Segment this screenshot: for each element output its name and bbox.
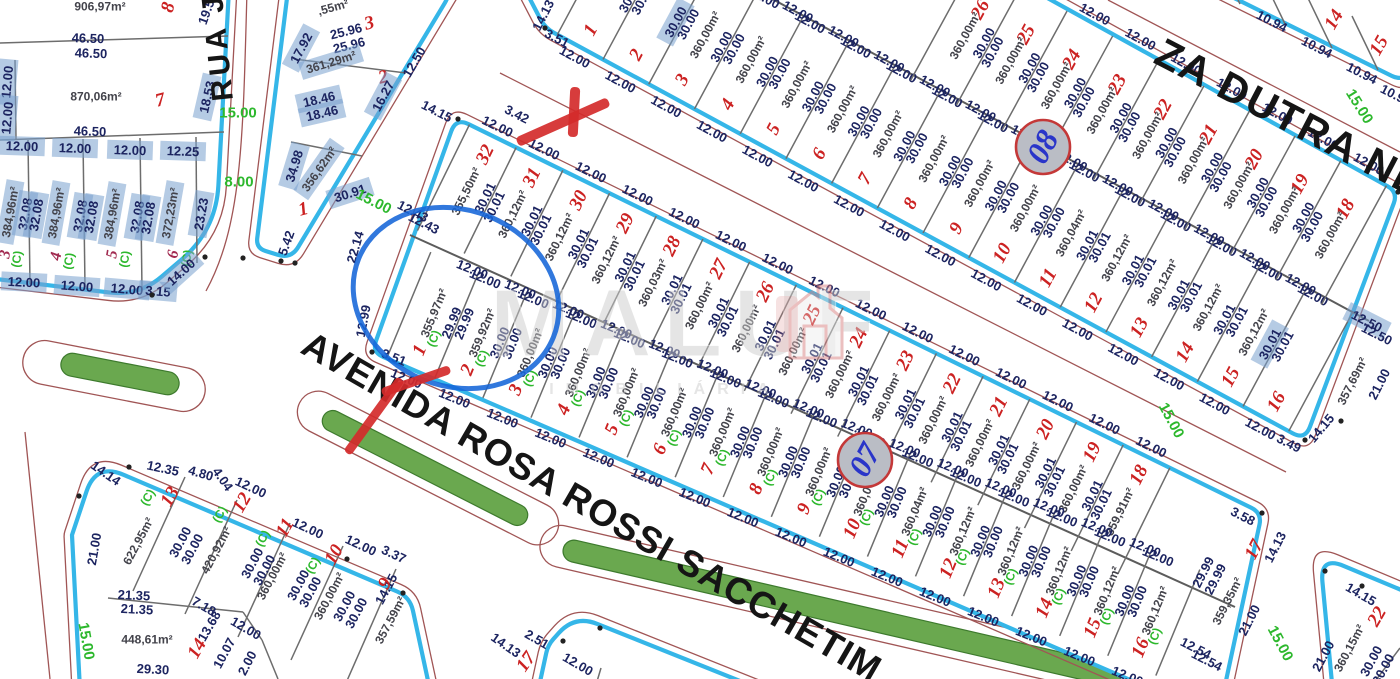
survey-corner-dot <box>292 260 297 265</box>
survey-corner-dot <box>126 464 131 469</box>
plat-map-screenshot: 32355,50m²12.0031360,12m²12.0030.0130.01… <box>0 0 1400 679</box>
svg-text:15.00: 15.00 <box>1155 400 1188 441</box>
survey-corner-dot <box>1302 437 1307 442</box>
measurement-label: 12.00 <box>107 140 153 161</box>
measurement-label: 12.00 <box>52 138 98 159</box>
svg-text:(C): (C) <box>116 250 133 269</box>
svg-text:12.00: 12.00 <box>7 274 40 291</box>
lot-area: 357,69m² <box>1334 355 1370 407</box>
block-badge-08: 08 <box>1016 120 1070 174</box>
svg-text:10.94: 10.94 <box>1378 81 1400 109</box>
survey-corner-dot <box>240 255 245 260</box>
lot-area: 870,06m² <box>70 89 121 103</box>
svg-text:12.00: 12.00 <box>58 140 91 156</box>
svg-text:21.35: 21.35 <box>120 601 153 618</box>
svg-text:14.15: 14.15 <box>419 97 455 125</box>
street-centerline <box>25 432 50 679</box>
survey-corner-dot <box>76 493 81 498</box>
street-width-label: 15.00 <box>353 186 394 218</box>
survey-corner-dot <box>344 556 349 561</box>
svg-text:15.00: 15.00 <box>1342 86 1376 127</box>
svg-text:12.35: 12.35 <box>145 457 180 478</box>
svg-text:IMOBILIÁRIA: IMOBILIÁRIA <box>549 379 781 398</box>
survey-corner-dot <box>1359 583 1364 588</box>
measurement-label: 46.50 <box>71 30 104 46</box>
svg-text:448,61m²: 448,61m² <box>121 632 172 646</box>
cadastral-map-canvas: 32355,50m²12.0031360,12m²12.0030.0130.01… <box>0 0 1400 679</box>
lot-area: 448,61m² <box>121 632 172 646</box>
measurement-label: 21.00 <box>1365 366 1393 402</box>
measurement-label: 3.37 <box>379 542 408 566</box>
svg-text:15.00: 15.00 <box>1264 623 1297 664</box>
measurement-label: 10.94 <box>1378 81 1400 109</box>
c-mark: (C) <box>60 252 77 271</box>
measurement-label: 12.00 <box>343 531 379 558</box>
svg-text:12.25: 12.25 <box>166 143 199 159</box>
survey-corner-dot <box>1338 418 1343 423</box>
median-green-strip <box>59 351 181 396</box>
survey-corner-dot <box>597 625 602 630</box>
street-width-label: 15.00 <box>1264 623 1297 664</box>
measurement-label: 21.35 <box>120 601 153 618</box>
measurement-label: 14.15 <box>419 97 455 125</box>
svg-text:8.00: 8.00 <box>224 173 253 190</box>
svg-text:29.30: 29.30 <box>136 661 169 678</box>
svg-text:870,06m²: 870,06m² <box>70 89 121 103</box>
svg-text:3.37: 3.37 <box>379 542 408 566</box>
street-width-label: 8.00 <box>224 173 253 190</box>
survey-corner-dot <box>1322 568 1327 573</box>
svg-text:15.00: 15.00 <box>353 186 394 218</box>
svg-text:(C): (C) <box>60 252 77 271</box>
measurement-label: 12.00 <box>1 271 48 292</box>
measurement-label: 12.25 <box>160 141 206 162</box>
svg-text:12.00: 12.00 <box>113 142 146 158</box>
svg-text:357,69m²: 357,69m² <box>1334 355 1370 407</box>
svg-text:15.00: 15.00 <box>219 104 257 121</box>
svg-text:906,97m²: 906,97m² <box>74 0 125 13</box>
svg-text:46.50: 46.50 <box>73 123 106 139</box>
svg-text:12.00: 12.00 <box>0 101 16 135</box>
measurement-label: 46.50 <box>73 123 106 139</box>
svg-text:12.00: 12.00 <box>343 531 379 558</box>
measurement-label: 12.00 <box>54 275 101 297</box>
lot-area: 906,97m² <box>74 0 125 13</box>
c-mark: (C) <box>8 250 25 269</box>
measurement-label: 46.50 <box>74 45 107 61</box>
survey-corner-dot <box>202 254 207 259</box>
survey-corner-dot <box>1259 510 1264 515</box>
measurement-label: 29.30 <box>136 661 169 678</box>
c-mark: (C) <box>116 250 133 269</box>
street-width-label: 15.00 <box>1342 86 1376 127</box>
street-width-label: 15.00 <box>1155 400 1188 441</box>
svg-text:46.50: 46.50 <box>74 45 107 61</box>
survey-corner-dot <box>455 116 460 121</box>
survey-corner-dot <box>542 25 547 30</box>
measurement-label: 12.35 <box>145 457 180 478</box>
survey-corner-dot <box>369 349 374 354</box>
street-width-label: 15.00 <box>219 104 257 121</box>
survey-corner-dot <box>149 292 154 297</box>
survey-corner-dot <box>560 638 565 643</box>
survey-corner-dot <box>278 258 283 263</box>
svg-text:12.00: 12.00 <box>60 278 94 295</box>
block-badge-07: 07 <box>838 433 892 487</box>
svg-text:(C): (C) <box>8 250 25 269</box>
survey-corner-dot <box>400 590 405 595</box>
svg-text:12.00: 12.00 <box>0 65 16 99</box>
svg-text:21.00: 21.00 <box>1365 366 1393 402</box>
svg-text:46.50: 46.50 <box>71 30 104 46</box>
